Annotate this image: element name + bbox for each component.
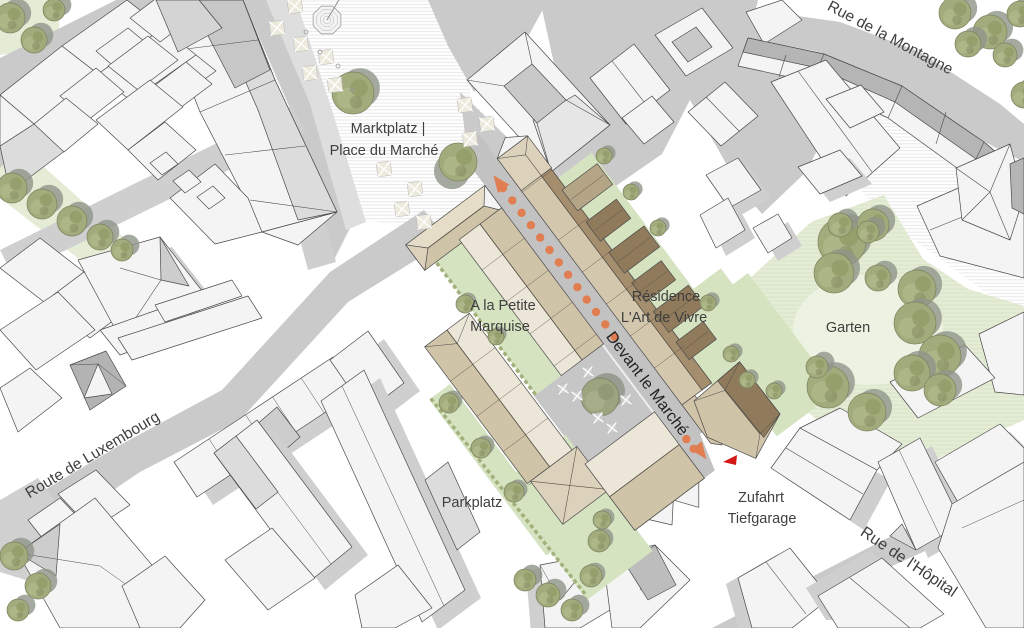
svg-text:Tiefgarage: Tiefgarage: [728, 511, 797, 527]
svg-text:Place du Marché: Place du Marché: [330, 143, 439, 159]
svg-text:Zufahrt: Zufahrt: [738, 490, 784, 506]
svg-text:A la Petite: A la Petite: [470, 298, 535, 314]
svg-text:Marquise: Marquise: [470, 319, 530, 335]
svg-text:L'Art de Vivre: L'Art de Vivre: [621, 310, 707, 326]
svg-text:Parkplatz: Parkplatz: [442, 495, 502, 511]
svg-text:Garten: Garten: [826, 320, 870, 336]
svg-text:Résidence: Résidence: [632, 289, 701, 305]
svg-text:Marktplatz |: Marktplatz |: [351, 121, 426, 137]
